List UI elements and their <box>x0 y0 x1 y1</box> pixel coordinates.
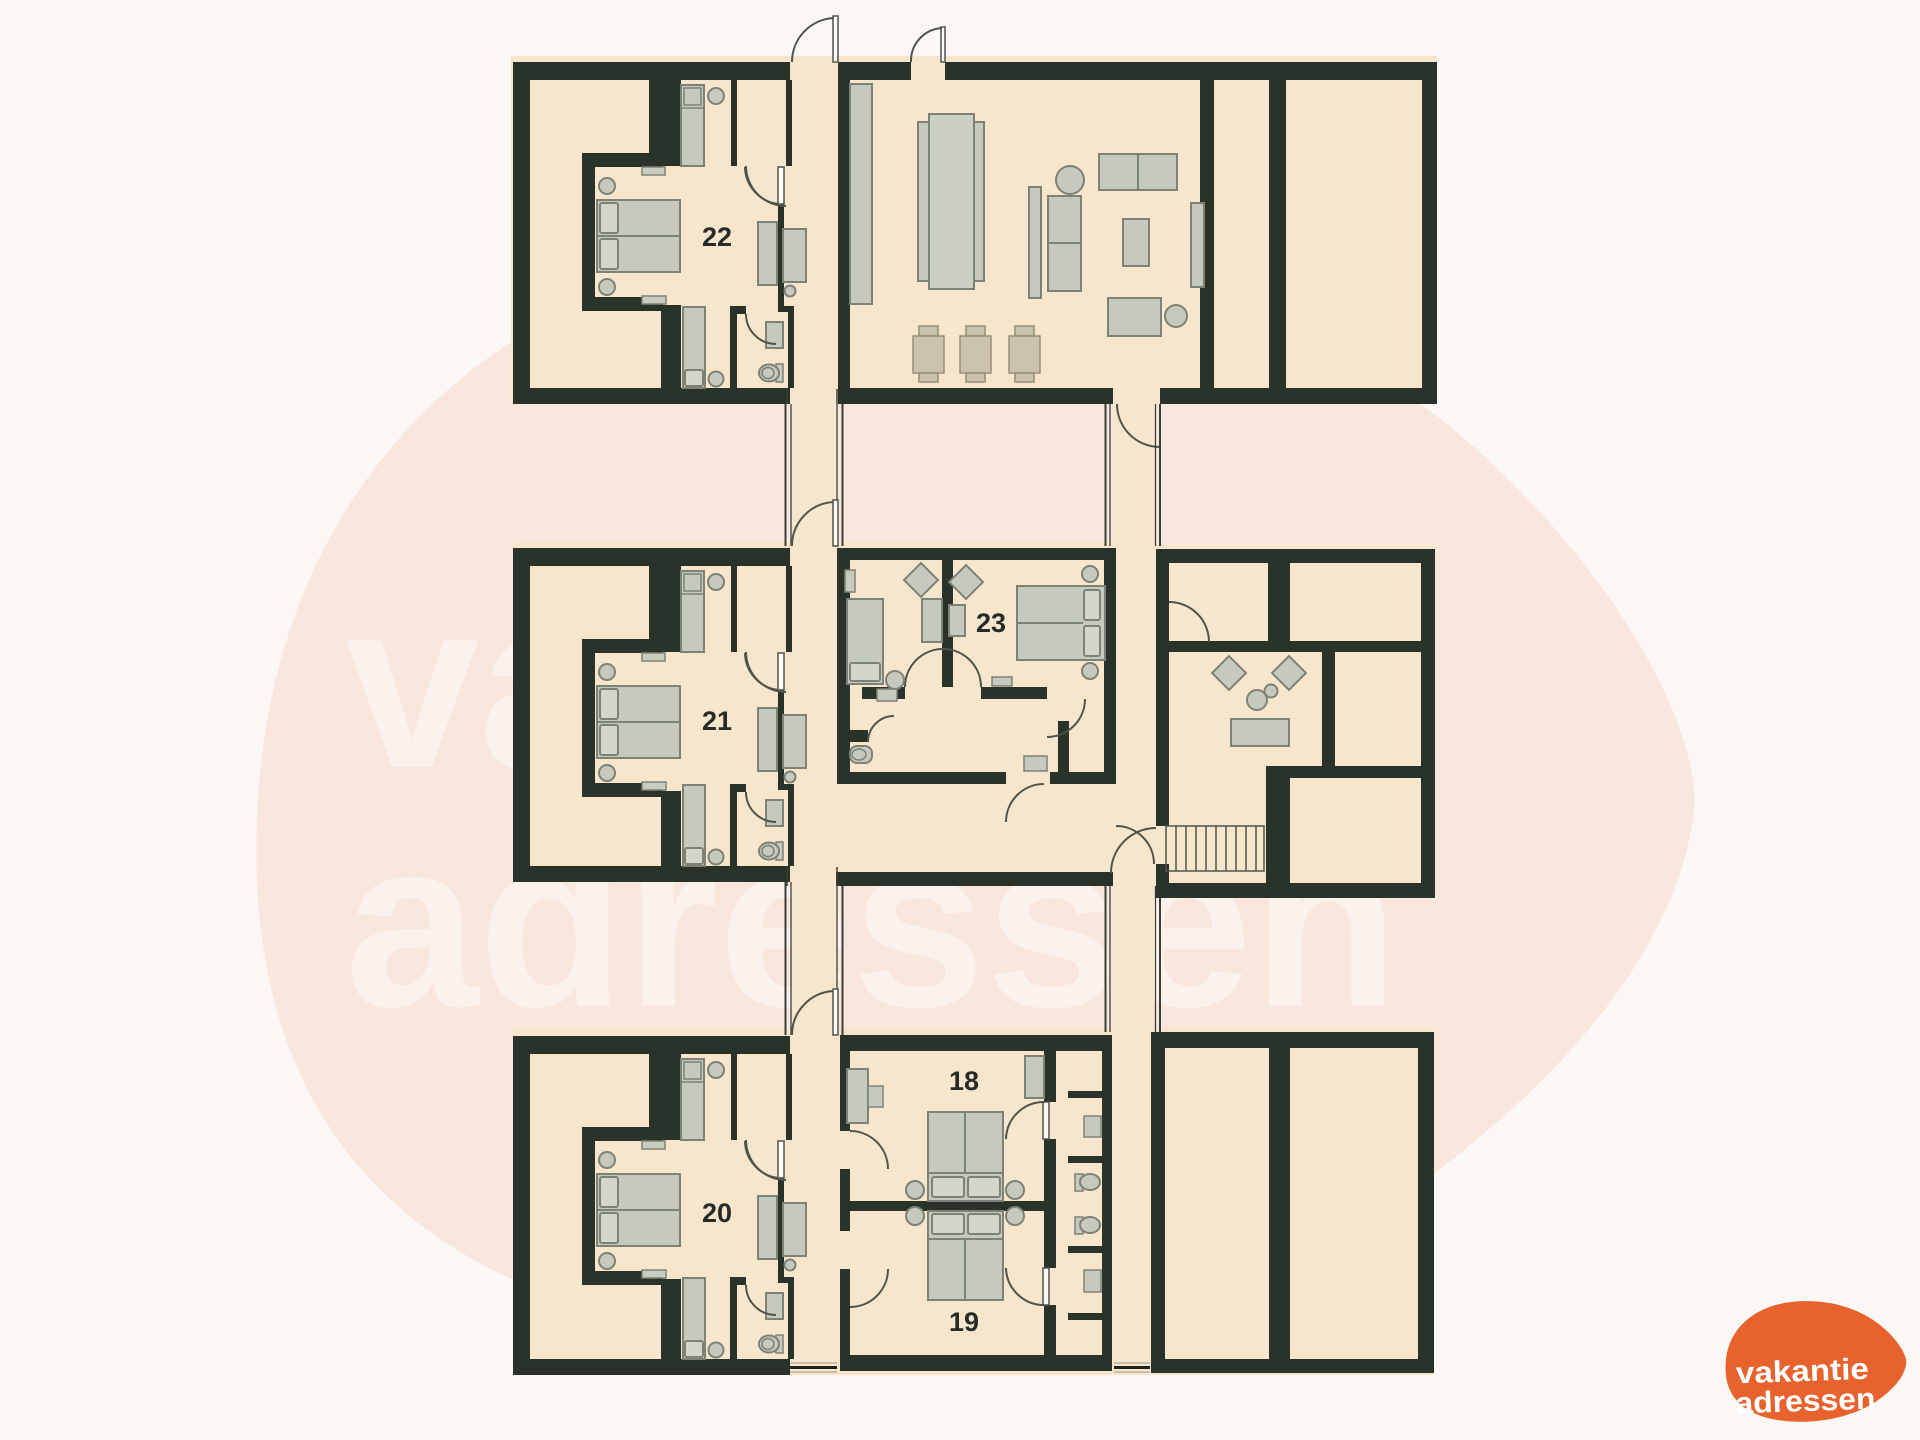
svg-text:22: 22 <box>702 222 732 252</box>
svg-text:19: 19 <box>949 1307 979 1337</box>
svg-text:adressen: adressen <box>1735 1383 1876 1421</box>
svg-text:21: 21 <box>702 706 732 736</box>
svg-text:20: 20 <box>702 1198 732 1228</box>
svg-text:23: 23 <box>976 608 1006 638</box>
svg-text:18: 18 <box>949 1066 979 1096</box>
